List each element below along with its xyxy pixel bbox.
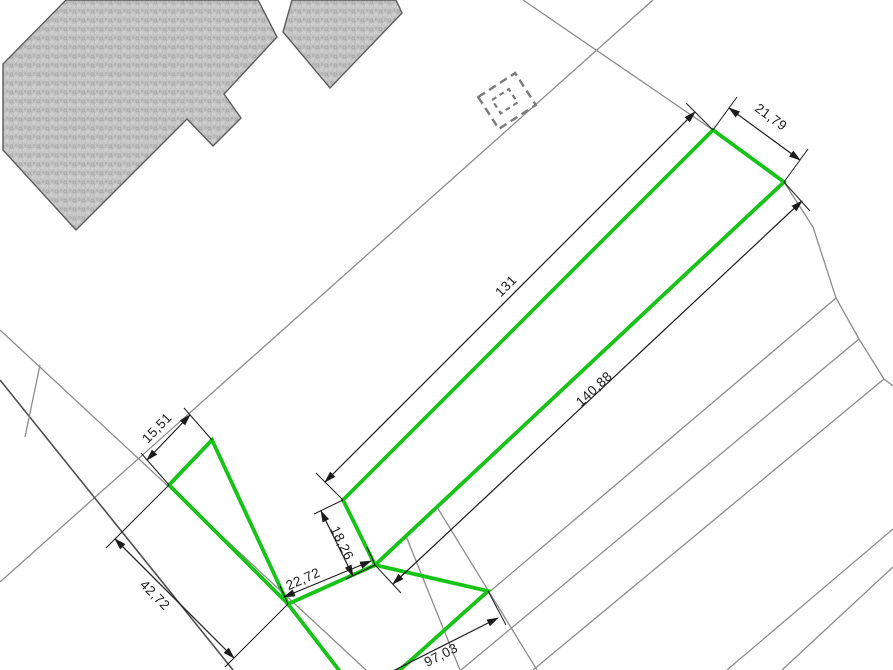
boundary-chain-east xyxy=(523,0,893,386)
boundary-parallel-4 xyxy=(727,529,893,670)
ext-15-51-b xyxy=(184,408,212,440)
boundary-parallel-5 xyxy=(782,567,893,670)
highlighted-parcels xyxy=(169,130,784,670)
ext-42-72-a xyxy=(106,485,169,548)
dashed-structure-symbol xyxy=(478,73,536,129)
dim-42-72 xyxy=(115,539,234,658)
ext-15-51-a xyxy=(141,453,169,485)
ext-18-26-b xyxy=(346,565,375,579)
dimension-extension-lines xyxy=(106,97,810,667)
ext-21-79-a xyxy=(713,97,737,130)
boundary-parallel-2 xyxy=(461,339,859,670)
building-footprint xyxy=(3,0,402,230)
boundary-parallel-3 xyxy=(533,379,884,670)
map-drawing xyxy=(0,0,893,670)
ext-140-88-a xyxy=(784,182,810,211)
cadastral-map: 21,79 131 140,88 15,51 42,72 22,72 18,26… xyxy=(0,0,893,670)
ext-97-03-a xyxy=(488,591,506,625)
ext-18-26-a xyxy=(314,500,343,514)
dim-131 xyxy=(325,112,695,482)
building-main-wing xyxy=(3,0,277,230)
ext-21-79-b xyxy=(784,149,808,182)
building-right-wing xyxy=(283,0,402,88)
parcel-long-strip xyxy=(343,130,784,565)
ext-42-72-b xyxy=(225,604,288,667)
parcel-triangle xyxy=(169,440,288,604)
